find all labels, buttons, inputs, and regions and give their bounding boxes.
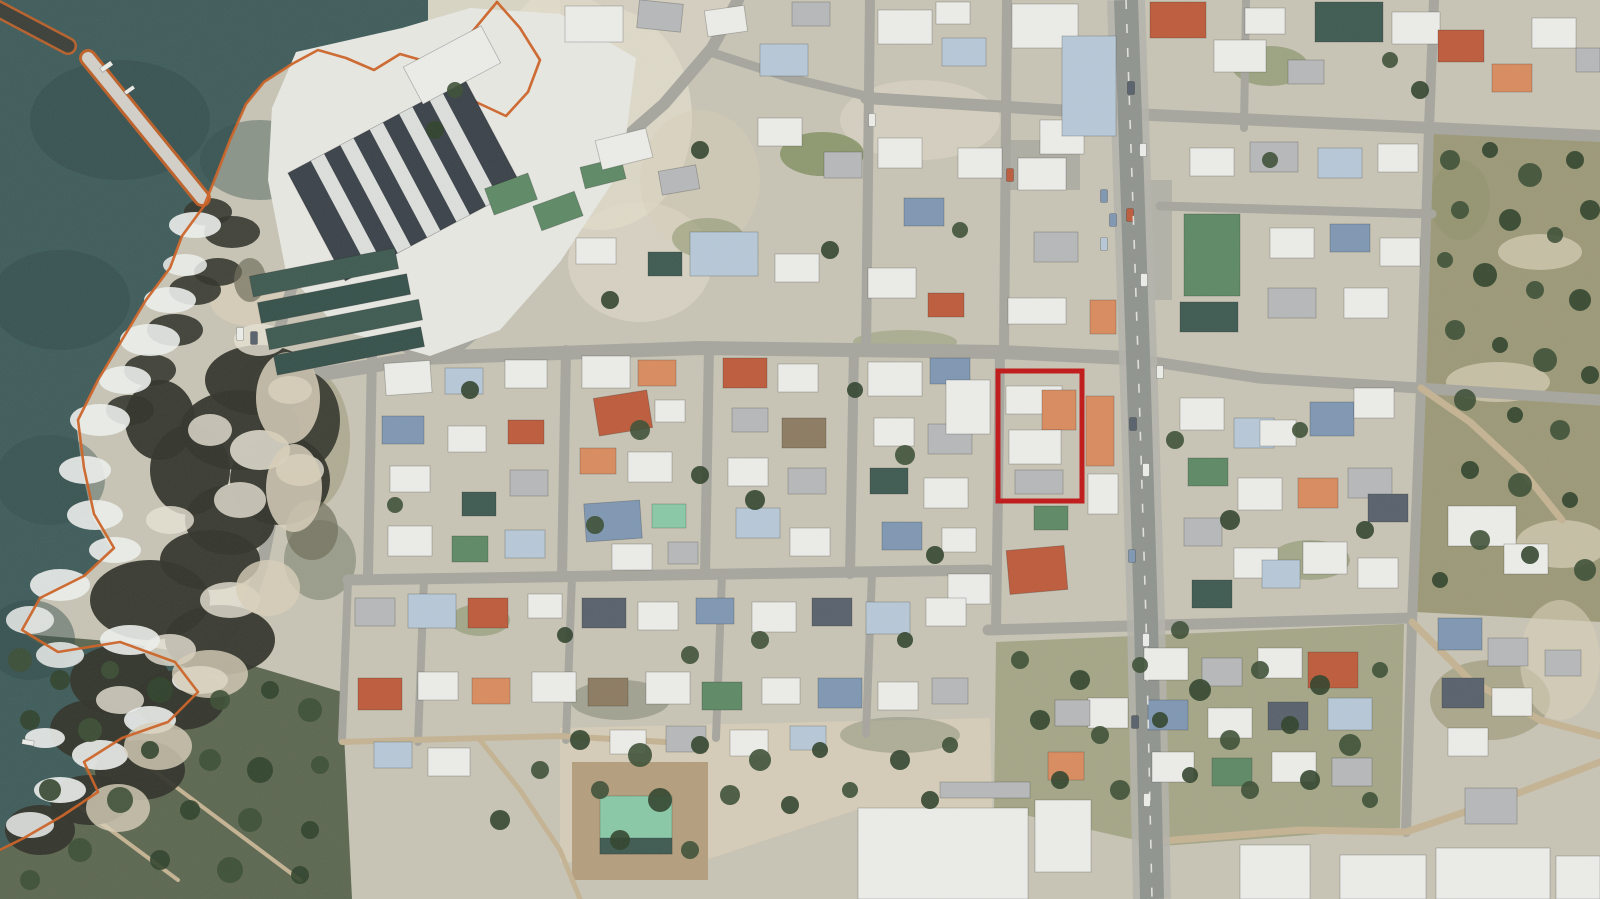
satellite-view: [0, 0, 1600, 899]
aerial-map: [0, 0, 1600, 899]
photo-grain-overlay: [0, 0, 1600, 899]
